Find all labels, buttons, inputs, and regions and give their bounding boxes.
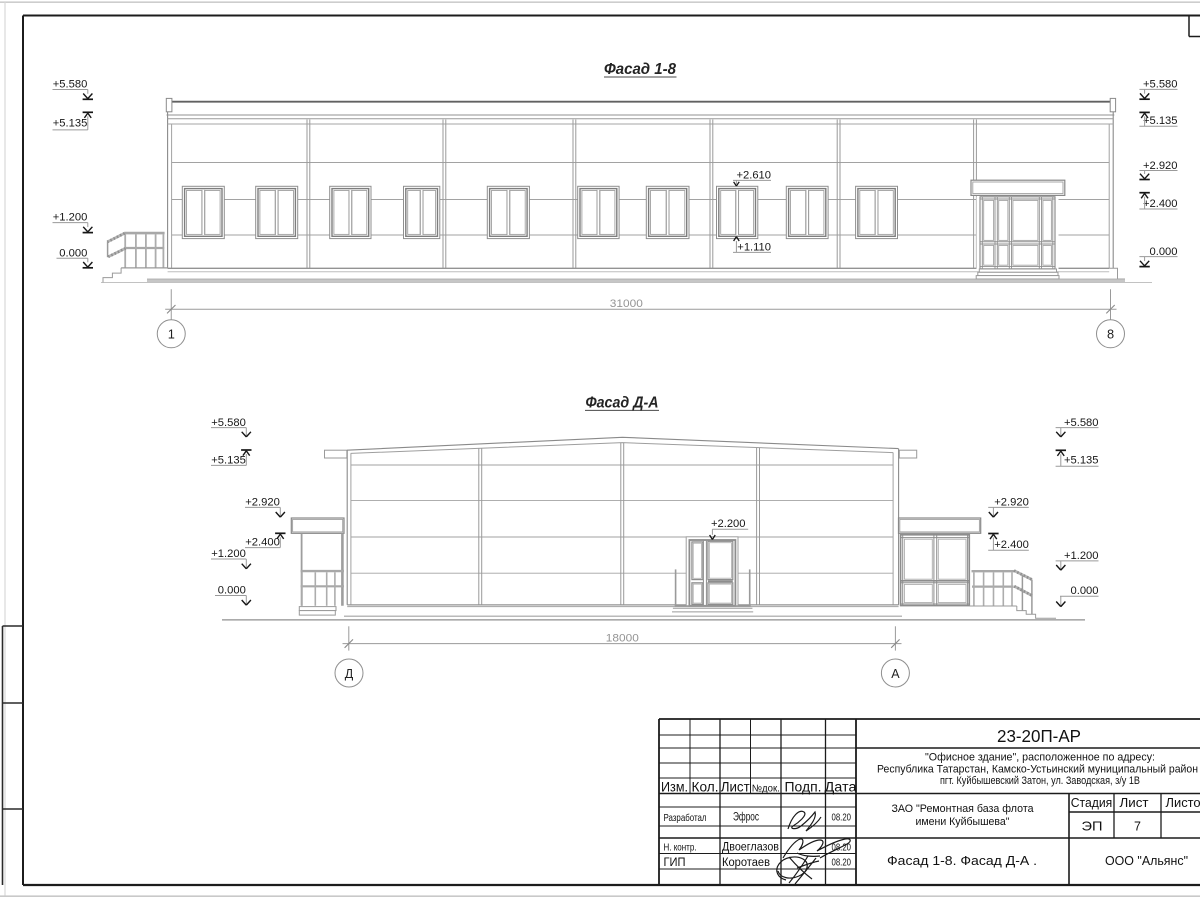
svg-text:+5.580: +5.580 [53,78,88,90]
svg-text:0.000: 0.000 [1071,585,1099,597]
svg-text:+2.400: +2.400 [1143,198,1178,210]
svg-text:имени Куйбышева": имени Куйбышева" [916,816,1010,828]
svg-text:+1.200: +1.200 [1064,550,1099,562]
svg-text:ООО "Альянс": ООО "Альянс" [1105,853,1188,868]
svg-text:08.20: 08.20 [832,857,852,869]
svg-text:ГИП: ГИП [664,857,686,869]
svg-text:+5.135: +5.135 [1143,115,1178,127]
svg-text:Изм.: Изм. [661,779,688,794]
svg-text:Листов: Листов [1166,796,1200,810]
svg-text:0.000: 0.000 [1150,246,1178,258]
svg-text:Н. контр.: Н. контр. [664,842,697,854]
svg-text:31000: 31000 [610,298,643,310]
svg-text:+2.200: +2.200 [711,518,746,530]
svg-text:Коротаев: Коротаев [722,857,770,869]
svg-text:+2.610: +2.610 [736,170,771,182]
svg-text:+2.400: +2.400 [994,539,1029,551]
svg-text:Дата: Дата [825,779,858,794]
svg-text:+5.135: +5.135 [1064,455,1099,467]
svg-text:А: А [891,667,900,681]
svg-text:08.20: 08.20 [832,811,852,823]
svg-text:+5.580: +5.580 [1143,78,1178,90]
svg-text:+5.135: +5.135 [53,118,88,130]
svg-text:0.000: 0.000 [218,585,246,597]
svg-text:+2.920: +2.920 [994,497,1029,509]
svg-text:ЗАО "Ремонтная база флота: ЗАО "Ремонтная база флота [892,803,1035,815]
svg-text:Фасад Д-А: Фасад Д-А [586,395,659,412]
svg-text:+2.400: +2.400 [245,537,280,549]
svg-text:Фасад 1-8. Фасад Д-А .: Фасад 1-8. Фасад Д-А . [887,853,1037,868]
svg-text:Лист: Лист [721,779,750,794]
svg-text:Двоеглазов: Двоеглазов [722,842,779,854]
svg-text:Стадия: Стадия [1071,796,1113,810]
svg-text:Лист: Лист [1120,796,1149,810]
svg-text:Разработал: Разработал [664,812,707,824]
svg-text:+2.920: +2.920 [245,497,280,509]
svg-text:пгт. Куйбышевский Затон, ул. З: пгт. Куйбышевский Затон, ул. Заводская, … [940,775,1140,787]
svg-text:Д: Д [345,667,354,681]
svg-text:+1.200: +1.200 [211,548,246,560]
svg-text:Фасад 1-8: Фасад 1-8 [604,61,676,78]
svg-text:1: 1 [168,327,175,342]
svg-text:Республика Татарстан, Камско-У: Республика Татарстан, Камско-Устьинский … [877,764,1198,776]
svg-text:Подп.: Подп. [785,779,822,794]
svg-text:+1.200: +1.200 [53,212,88,224]
svg-text:8: 8 [1107,327,1114,342]
svg-text:+1.110: +1.110 [737,242,771,254]
svg-text:23-20П-АР: 23-20П-АР [997,726,1081,746]
svg-text:"Офисное здание", расположенно: "Офисное здание", расположенное по адрес… [925,752,1155,764]
svg-text:Кол.: Кол. [692,779,719,794]
svg-text:+5.580: +5.580 [1064,417,1099,429]
svg-text:7: 7 [1134,820,1141,834]
svg-text:ЭП: ЭП [1082,820,1103,834]
svg-text:№док.: №док. [752,783,780,794]
svg-text:0.000: 0.000 [59,247,87,259]
svg-text:+5.580: +5.580 [211,417,246,429]
svg-text:+5.135: +5.135 [211,455,246,467]
svg-text:18000: 18000 [606,633,639,645]
svg-text:Эфрос: Эфрос [733,811,759,823]
